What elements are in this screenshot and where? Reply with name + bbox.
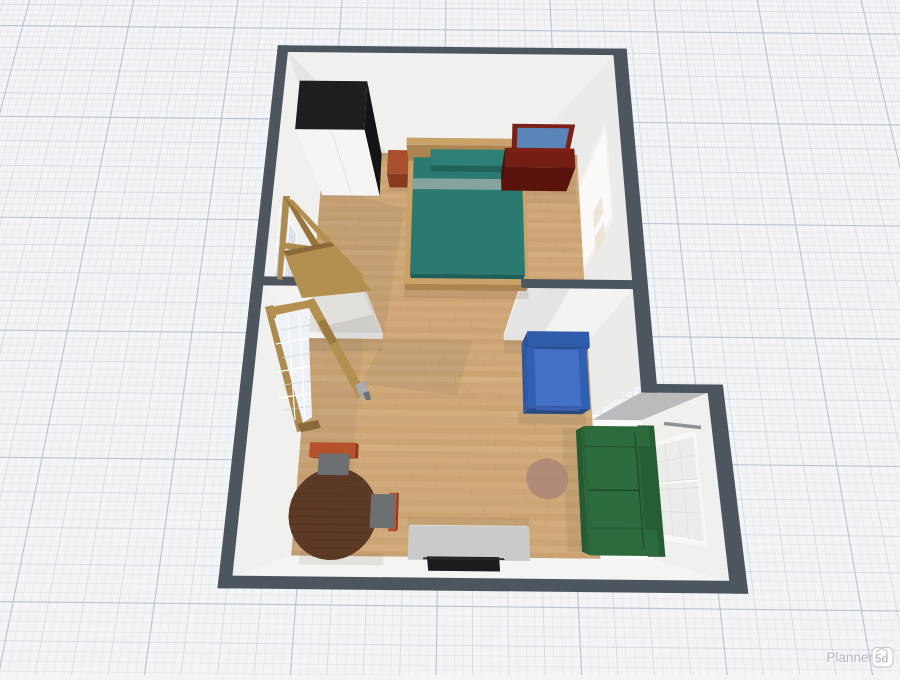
svg-text:Planner: Planner [827,650,874,665]
svg-text:5d: 5d [875,654,888,666]
